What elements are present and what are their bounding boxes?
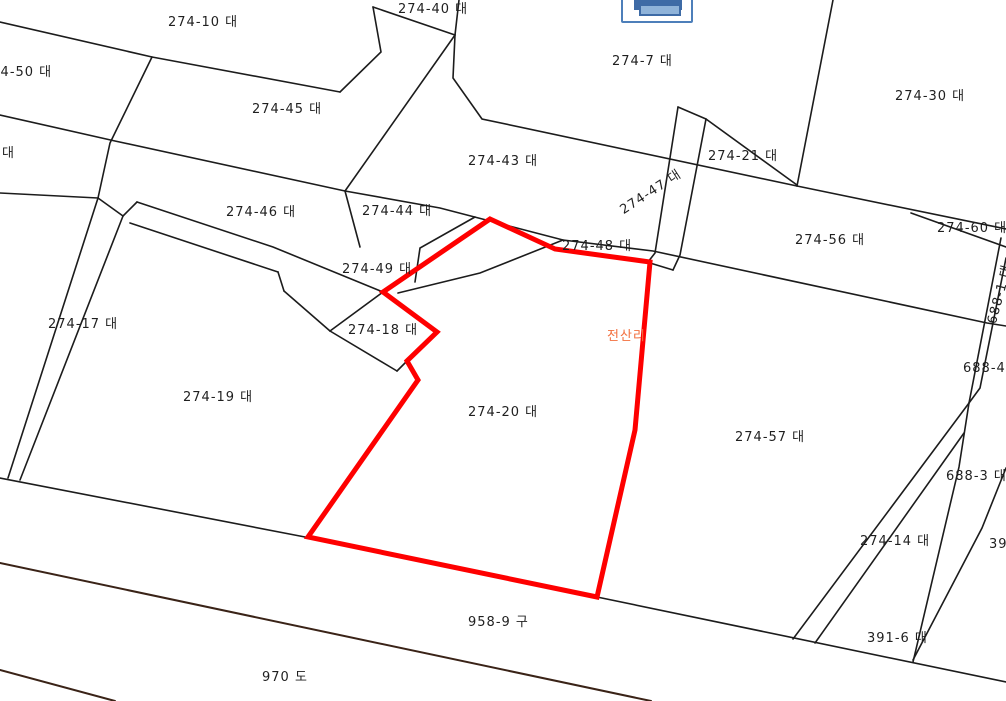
cadastral-map-viewport[interactable]: 274-50 대274-10 대274-40 대274-7 대274-30 대대… bbox=[0, 0, 1006, 701]
parcel-label-274-21: 274-21 대 bbox=[708, 150, 778, 164]
parcel-label-fragment-dae: 대 bbox=[2, 147, 15, 161]
parcel-label-274-57: 274-57 대 bbox=[735, 431, 805, 445]
parcel-label-274-30: 274-30 대 bbox=[895, 90, 965, 104]
printer-icon bbox=[632, 0, 684, 20]
parcel-label-274-48: 274-48 대 bbox=[562, 240, 632, 254]
parcel-label-fragment-39: 39 bbox=[989, 538, 1006, 552]
parcel-label-274-7: 274-7 대 bbox=[612, 55, 673, 69]
parcel-label-274-43: 274-43 대 bbox=[468, 155, 538, 169]
parcel-label-274-14: 274-14 대 bbox=[860, 535, 930, 549]
parcel-label-274-17: 274-17 대 bbox=[48, 318, 118, 332]
parcel-label-958-9: 958-9 구 bbox=[468, 616, 529, 630]
print-button[interactable] bbox=[621, 0, 693, 23]
parcel-label-391-6: 391-6 대 bbox=[867, 632, 928, 646]
parcel-label-274-46: 274-46 대 bbox=[226, 206, 296, 220]
parcel-label-274-10: 274-10 대 bbox=[168, 16, 238, 30]
parcel-label-970: 970 도 bbox=[262, 671, 308, 685]
parcel-labels-layer: 274-50 대274-10 대274-40 대274-7 대274-30 대대… bbox=[0, 0, 1006, 701]
parcel-label-274-56: 274-56 대 bbox=[795, 234, 865, 248]
parcel-label-274-44: 274-44 대 bbox=[362, 205, 432, 219]
parcel-label-274-19: 274-19 대 bbox=[183, 391, 253, 405]
parcel-label-274-18: 274-18 대 bbox=[348, 324, 418, 338]
parcel-label-274-20: 274-20 대 bbox=[468, 406, 538, 420]
parcel-label-688-1: 688-1 대 bbox=[986, 263, 1006, 325]
parcel-label-274-49: 274-49 대 bbox=[342, 263, 412, 277]
parcel-label-village: 전산리 bbox=[607, 330, 646, 344]
parcel-label-274-40: 274-40 대 bbox=[398, 3, 468, 17]
parcel-label-274-47: 274-47 대 bbox=[618, 168, 684, 218]
parcel-label-274-45: 274-45 대 bbox=[252, 103, 322, 117]
parcel-label-688-3: 688-3 대 bbox=[946, 470, 1006, 484]
parcel-label-688-4: 688-4 bbox=[963, 362, 1006, 376]
parcel-label-274-60: 274-60 대 bbox=[937, 222, 1006, 236]
parcel-label-274-50: 274-50 대 bbox=[0, 66, 52, 80]
